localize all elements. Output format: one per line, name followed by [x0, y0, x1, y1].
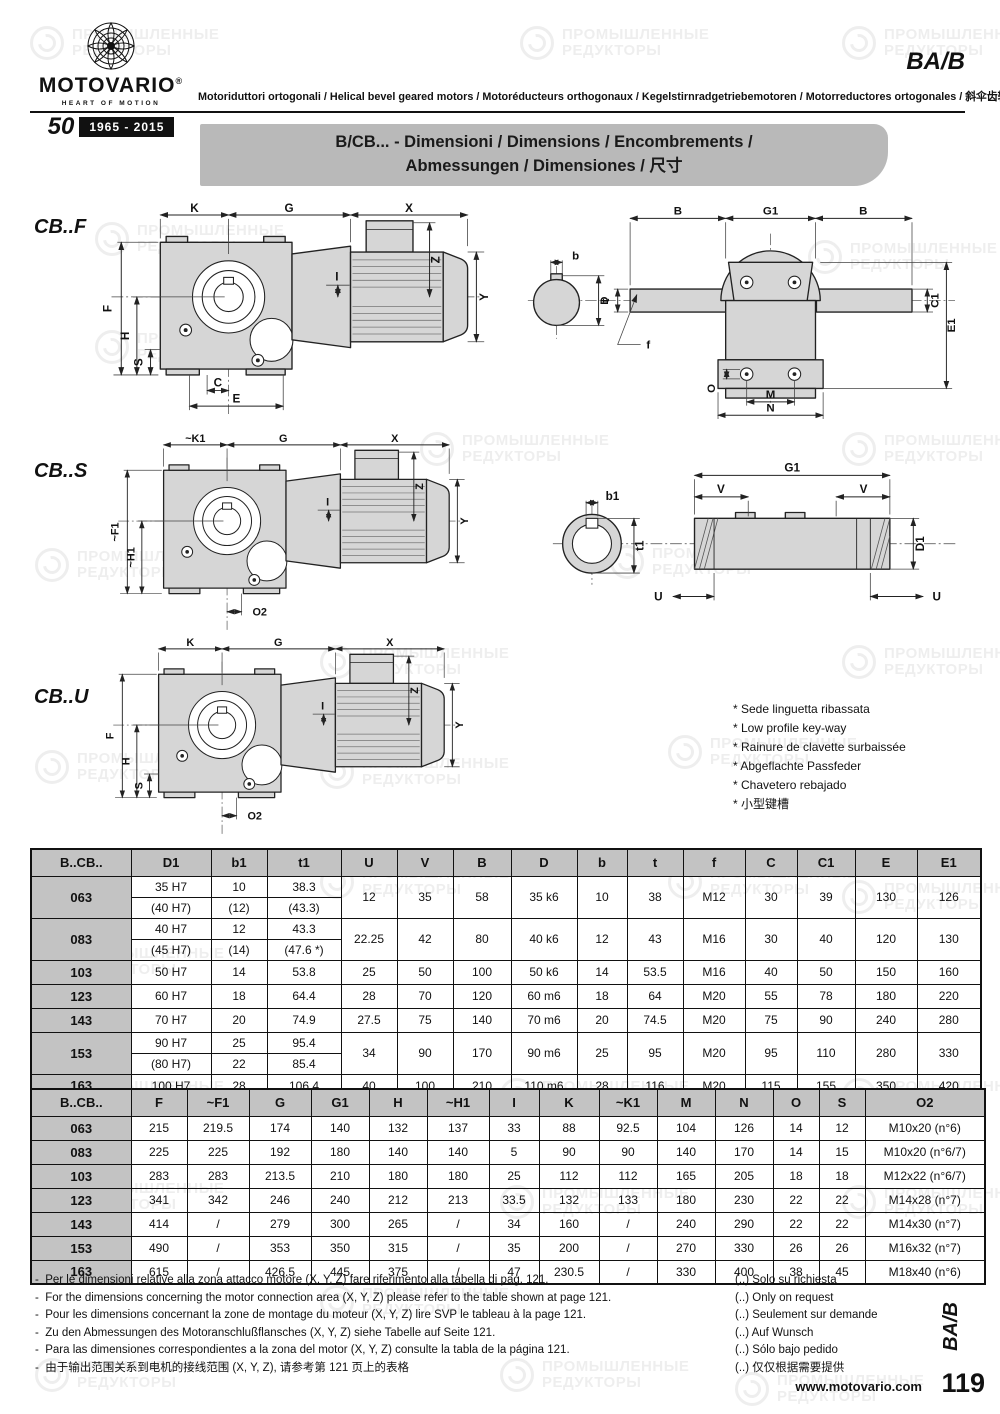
table-cell: 330 [917, 1032, 981, 1074]
dim-label-o: O [706, 384, 718, 393]
watermark-line: ПРОМЫШЛЕННЫЕ [884, 27, 1000, 44]
table-cell: 205 [715, 1164, 773, 1188]
dim-label-y: Y [454, 721, 466, 729]
anniversary-badge: 50 1965 - 2015 [26, 113, 196, 141]
dim-label-m: M [766, 389, 776, 401]
dim-label-z: Z [409, 687, 421, 694]
dim-label-t1: t1 [634, 540, 647, 551]
column-header: G1 [311, 1089, 369, 1116]
keyway-note-line: * Low profile key-way [733, 719, 906, 738]
dim-label-b1: b1 [606, 490, 620, 503]
dim-label-d-rot: D [599, 296, 611, 304]
column-header: B..CB.. [31, 849, 131, 876]
table-cell: 120 [855, 918, 917, 960]
dim-label-c1: C1 [930, 293, 942, 308]
table-row: 14370 H72074.927.57514070 m62074.5M20759… [31, 1008, 981, 1032]
column-header: D [511, 849, 577, 876]
dim-label-v-right: V [860, 483, 868, 496]
column-header: E1 [917, 849, 981, 876]
table-cell: 18 [577, 984, 627, 1008]
table-cell: / [599, 1236, 657, 1260]
table1-header-row: B..CB..D1b1t1UVBDbtfCC1EE1 [31, 849, 981, 876]
table-cell: 92.5 [599, 1116, 657, 1140]
anniversary-number: 50 [48, 113, 75, 141]
footnote-line: - Per le dimensioni relative alla zona a… [35, 1272, 611, 1290]
website-url: www.motovario.com [795, 1379, 922, 1394]
table-cell: 90 H7 [131, 1032, 211, 1053]
gearbox-front [630, 251, 912, 398]
watermark-line: ПРОМЫШЛЕННЫЕ [462, 433, 609, 450]
dim-label-g: G [285, 203, 294, 215]
table-cell: 35 k6 [511, 876, 577, 918]
table-cell: 22 [773, 1188, 819, 1212]
table-cell: M14x28 (n°7) [865, 1188, 985, 1212]
table-cell: 53.5 [627, 960, 683, 984]
table-cell: / [187, 1212, 249, 1236]
cbu-side-view-drawing: K G X F H S O2 Z Y I [95, 638, 467, 842]
table-row: 153490/353350315/35200/2703302626M16x32 … [31, 1236, 985, 1260]
keyway-note-line: * Abgeflachte Passfeder [733, 757, 906, 776]
table-cell: / [427, 1236, 489, 1260]
table-cell: 200 [539, 1236, 599, 1260]
model-cell: 143 [31, 1212, 131, 1236]
footnote-line: (..) Solo su richiesta [735, 1272, 878, 1290]
swirl-icon [35, 548, 69, 582]
table-cell: 300 [311, 1212, 369, 1236]
table-cell: 18 [773, 1164, 819, 1188]
banner-line-2: Abmessungen / Dimensiones / 尺寸 [406, 155, 683, 179]
column-header: M [657, 1089, 715, 1116]
table-cell: 40 [797, 918, 855, 960]
table-cell: 90 [397, 1032, 453, 1074]
dim-label-f-small: f [646, 339, 650, 351]
swirl-icon [35, 750, 69, 784]
table-cell: 280 [917, 1008, 981, 1032]
watermark-line: РЕДУКТОРЫ [562, 43, 709, 60]
table-cell: 95 [745, 1032, 797, 1074]
section-title-cbs: CB..S [34, 460, 87, 483]
table2-header-row: B..CB..F~F1GG1H~H1IK~K1MNOSO2 [31, 1089, 985, 1116]
dim-label-g1: G1 [784, 461, 800, 474]
dim-label-i: I [326, 497, 329, 509]
swirl-icon [735, 1372, 769, 1406]
dim-label-z: Z [429, 256, 442, 263]
model-cell: 143 [31, 1008, 131, 1032]
table-cell: 38 [627, 876, 683, 918]
table-cell: 80 [453, 918, 511, 960]
gearbox-housing [160, 236, 293, 375]
table-cell: 180 [855, 984, 917, 1008]
dim-label-h1: ~H1 [126, 547, 138, 567]
table-cell: 270 [657, 1236, 715, 1260]
table-cell: / [427, 1212, 489, 1236]
table-cell: 230 [715, 1188, 773, 1212]
model-cell: 123 [31, 1188, 131, 1212]
column-header: N [715, 1089, 773, 1116]
table-row: 10350 H71453.8255010050 k61453.5M1640501… [31, 960, 981, 984]
hollow-shaft-section [563, 514, 622, 573]
watermark: ПРОМЫШЛЕННЫЕРЕДУКТОРЫ [842, 645, 1000, 679]
table-cell: 74.5 [627, 1008, 683, 1032]
dim-label-h: H [119, 332, 132, 340]
column-header: C1 [797, 849, 855, 876]
table-cell: 212 [369, 1188, 427, 1212]
table-cell: 280 [855, 1032, 917, 1074]
keyway-note-line: * Sede linguetta ribassata [733, 700, 906, 719]
table-cell: 27.5 [341, 1008, 397, 1032]
table-cell: 75 [397, 1008, 453, 1032]
dim-label-y: Y [459, 517, 471, 525]
swirl-icon [520, 26, 554, 60]
table-cell: 174 [249, 1116, 311, 1140]
model-cell: 063 [31, 876, 131, 918]
table-cell: 85.4 [267, 1053, 341, 1074]
table-row: 08340 H71243.322.25428040 k61243M1630401… [31, 918, 981, 939]
dim-label-g: G [279, 434, 287, 445]
table-cell: M12x22 (n°6/7) [865, 1164, 985, 1188]
table-cell: 180 [427, 1164, 489, 1188]
table-cell: 213 [427, 1188, 489, 1212]
dim-label-c: C [214, 377, 223, 390]
motor [281, 654, 444, 772]
column-header: ~F1 [187, 1089, 249, 1116]
table-cell: 14 [577, 960, 627, 984]
model-cell: 103 [31, 1164, 131, 1188]
table-cell: 283 [187, 1164, 249, 1188]
table-cell: 132 [369, 1116, 427, 1140]
watermark-line: РЕДУКТОРЫ [542, 1375, 689, 1392]
table-cell: 170 [715, 1140, 773, 1164]
table-cell: 246 [249, 1188, 311, 1212]
table-cell: 12 [819, 1116, 865, 1140]
table-cell: 25 [211, 1032, 267, 1053]
column-header: B..CB.. [31, 1089, 131, 1116]
table-cell: 12 [577, 918, 627, 960]
brand-name: MOTOVARIO® [26, 74, 196, 98]
dim-label-x: X [405, 203, 413, 215]
table-cell: 350 [311, 1236, 369, 1260]
table-cell: (45 H7) [131, 939, 211, 960]
table-cell: 414 [131, 1212, 187, 1236]
table-cell: 30 [745, 918, 797, 960]
table-cell: 100 [453, 960, 511, 984]
table-cell: 126 [917, 876, 981, 918]
dim-label-d1: D1 [914, 536, 927, 551]
table-cell: 40 H7 [131, 918, 211, 939]
dim-label-f: F [104, 732, 116, 739]
table-cell: 50 [797, 960, 855, 984]
footnote-line: (..) Only on request [735, 1290, 878, 1308]
table-cell: (43.3) [267, 897, 341, 918]
column-header: C [745, 849, 797, 876]
brand-tagline: HEART OF MOTION [26, 100, 196, 107]
table-cell: 40 [745, 960, 797, 984]
table-cell: 38.3 [267, 876, 341, 897]
table-cell: 112 [599, 1164, 657, 1188]
table-cell: M16 [683, 918, 745, 960]
dim-label-x: X [386, 638, 394, 649]
table-cell: 165 [657, 1164, 715, 1188]
table-cell: 132 [539, 1188, 599, 1212]
dim-label-f1: ~F1 [109, 522, 121, 541]
table-cell: M10x20 (n°6) [865, 1116, 985, 1140]
table-cell: 240 [855, 1008, 917, 1032]
column-header: H [369, 1089, 427, 1116]
table-cell: 22 [819, 1188, 865, 1212]
table-cell: 18 [819, 1164, 865, 1188]
table-cell: 22.25 [341, 918, 397, 960]
table-cell: M16x32 (n°7) [865, 1236, 985, 1260]
banner-line-1: B/CB... - Dimensioni / Dimensions / Enco… [335, 131, 752, 155]
table-cell: 283 [131, 1164, 187, 1188]
column-header: t [627, 849, 683, 876]
dim-label-b-right: B [859, 206, 867, 218]
table-cell: 130 [917, 918, 981, 960]
footnote-line: (..) Auf Wunsch [735, 1325, 878, 1343]
table-cell: (12) [211, 897, 267, 918]
table-cell: 64 [627, 984, 683, 1008]
table-cell: 90 [797, 1008, 855, 1032]
footnote-line: - For the dimensions concerning the moto… [35, 1290, 611, 1308]
table-cell: M20 [683, 1008, 745, 1032]
catalog-page: ПРОМЫШЛЕННЫЕРЕДУКТОРЫПРОМЫШЛЕННЫЕРЕДУКТО… [0, 0, 1000, 1414]
table-cell: 22 [211, 1053, 267, 1074]
dim-label-g: G [274, 638, 282, 649]
table-cell: 22 [819, 1212, 865, 1236]
table-cell: 26 [819, 1236, 865, 1260]
table-cell: 140 [369, 1140, 427, 1164]
table-cell: 26 [773, 1236, 819, 1260]
table-cell: 490 [131, 1236, 187, 1260]
column-header: B [453, 849, 511, 876]
table-cell: 140 [453, 1008, 511, 1032]
column-header: V [397, 849, 453, 876]
footnote-line: - Para las dimensiones correspondientes … [35, 1342, 611, 1360]
table-cell: M14x30 (n°7) [865, 1212, 985, 1236]
model-cell: 083 [31, 918, 131, 960]
table-cell: 279 [249, 1212, 311, 1236]
table-cell: 14 [773, 1140, 819, 1164]
anniversary-years: 1965 - 2015 [79, 117, 174, 137]
footnote-line: (..) Sólo bajo pedido [735, 1342, 878, 1360]
motor [292, 221, 468, 348]
dim-label-z: Z [414, 483, 426, 490]
table-cell: 50 k6 [511, 960, 577, 984]
table-cell: 240 [657, 1212, 715, 1236]
watermark-line: РЕДУКТОРЫ [77, 1375, 224, 1392]
table-cell: 95 [627, 1032, 683, 1074]
table-cell: 265 [369, 1212, 427, 1236]
table-cell: M12 [683, 876, 745, 918]
table-cell: 22 [773, 1212, 819, 1236]
footnote-line: - Zu den Abmessungen des Motoranschlußfl… [35, 1325, 611, 1343]
dim-label-s: S [133, 782, 145, 789]
column-header: G [249, 1089, 311, 1116]
table-cell: 130 [855, 876, 917, 918]
watermark-line: ПРОМЫШЛЕННЫЕ [884, 646, 1000, 663]
table-cell: 43.3 [267, 918, 341, 939]
footnotes-right: (..) Solo su richiesta(..) Only on reque… [735, 1272, 878, 1377]
section-title-cbu: CB..U [34, 686, 88, 709]
table-cell: 5 [489, 1140, 539, 1164]
dim-label-i: I [321, 701, 324, 713]
swirl-icon [842, 26, 876, 60]
dim-label-x: X [391, 434, 399, 445]
table-cell: 20 [577, 1008, 627, 1032]
column-header: O [773, 1089, 819, 1116]
table-cell: M18x40 (n°6) [865, 1260, 985, 1284]
table-cell: 225 [131, 1140, 187, 1164]
table-cell: 55 [745, 984, 797, 1008]
table-row: 12334134224624021221333.5132133180230222… [31, 1188, 985, 1212]
table-cell: 70 H7 [131, 1008, 211, 1032]
table-cell: 341 [131, 1188, 187, 1212]
shaft-cross-section [534, 274, 580, 326]
table-cell: 70 m6 [511, 1008, 577, 1032]
dim-label-k: K [190, 203, 199, 215]
table-cell: M20 [683, 984, 745, 1008]
table-cell: 35 H7 [131, 876, 211, 897]
table-cell: 315 [369, 1236, 427, 1260]
keyway-notes: * Sede linguetta ribassata* Low profile … [733, 700, 906, 814]
table-cell: 220 [917, 984, 981, 1008]
dim-label-k: K [186, 638, 194, 649]
table-cell: 240 [311, 1188, 369, 1212]
table-row: 083225225192180140140590901401701415M10x… [31, 1140, 985, 1164]
dim-label-k1: ~K1 [185, 434, 205, 445]
table-cell: 90 [539, 1140, 599, 1164]
table-cell: 192 [249, 1140, 311, 1164]
document-code: BA/B [906, 48, 965, 76]
table-cell: 50 H7 [131, 960, 211, 984]
table-cell: 28 [341, 984, 397, 1008]
gearbox-housing [159, 669, 282, 798]
table-cell: M16 [683, 960, 745, 984]
column-header: F [131, 1089, 187, 1116]
table-cell: 33.5 [489, 1188, 539, 1212]
table-cell: 10 [577, 876, 627, 918]
hollow-shaft-cylinder [695, 513, 890, 570]
table-cell: 342 [187, 1188, 249, 1212]
table-row: 12360 H71864.4287012060 m61864M205578180… [31, 984, 981, 1008]
table-cell: 60 H7 [131, 984, 211, 1008]
gearbox-housing [164, 465, 287, 594]
model-cell: 153 [31, 1236, 131, 1260]
table-cell: 180 [311, 1140, 369, 1164]
table-cell: (14) [211, 939, 267, 960]
footnote-line: - Pour les dimensions concernant la zone… [35, 1307, 611, 1325]
table-cell: 25 [341, 960, 397, 984]
dim-label-h: H [121, 757, 133, 765]
column-header: E [855, 849, 917, 876]
table-cell: 290 [715, 1212, 773, 1236]
table-cell: 74.9 [267, 1008, 341, 1032]
table-cell: 137 [427, 1116, 489, 1140]
table-cell: 18 [211, 984, 267, 1008]
brand-logo: MOTOVARIO® HEART OF MOTION 50 1965 - 201… [26, 20, 196, 141]
model-cell: 123 [31, 984, 131, 1008]
cbf-side-view-drawing: K G X F H S C E Z Y I [92, 203, 492, 423]
column-header: b [577, 849, 627, 876]
table-row: 06335 H71038.312355835 k61038M1230391301… [31, 876, 981, 897]
table-row: 15390 H72595.4349017090 m62595M209511028… [31, 1032, 981, 1053]
table-cell: 50 [397, 960, 453, 984]
table-cell: 140 [427, 1140, 489, 1164]
table-cell: 35 [397, 876, 453, 918]
dim-label-s: S [133, 358, 146, 366]
table-cell: (47.6 *) [267, 939, 341, 960]
dim-label-e1: E1 [946, 318, 958, 333]
section-title-cbf: CB..F [34, 216, 86, 239]
dimensions-table-1: B..CB..D1b1t1UVBDbtfCC1EE1 06335 H71038.… [30, 848, 982, 1099]
watermark: ПРОМЫШЛЕННЫЕРЕДУКТОРЫ [520, 26, 709, 60]
table-cell: 140 [657, 1140, 715, 1164]
table-cell: M10x20 (n°6/7) [865, 1140, 985, 1164]
table-cell: 215 [131, 1116, 187, 1140]
table-cell: 170 [453, 1032, 511, 1074]
model-cell: 063 [31, 1116, 131, 1140]
column-header: b1 [211, 849, 267, 876]
table-cell: 95.4 [267, 1032, 341, 1053]
table-cell: 104 [657, 1116, 715, 1140]
footnote-line: - 由于输出范围关系到电机的接线范围 (X, Y, Z), 请参考第 121 页… [35, 1360, 611, 1378]
table-cell: 150 [855, 960, 917, 984]
column-header: I [489, 1089, 539, 1116]
table-cell: (40 H7) [131, 897, 211, 918]
watermark-text: ПРОМЫШЛЕННЫЕРЕДУКТОРЫ [884, 646, 1000, 679]
title-banner: B/CB... - Dimensioni / Dimensions / Enco… [200, 124, 888, 186]
table-cell: (80 H7) [131, 1053, 211, 1074]
table-cell: 90 [599, 1140, 657, 1164]
table-cell: 30 [745, 876, 797, 918]
table-cell: 110 [797, 1032, 855, 1074]
table-cell: 35 [489, 1236, 539, 1260]
column-header: D1 [131, 849, 211, 876]
keyway-note-line: * Rainure de clavette surbaissée [733, 738, 906, 757]
header-rule [30, 111, 965, 113]
column-header: K [539, 1089, 599, 1116]
table-cell: 20 [211, 1008, 267, 1032]
dim-label-o2: O2 [252, 606, 267, 618]
keyway-note-line: * 小型键槽 [733, 795, 906, 814]
table-cell: 90 m6 [511, 1032, 577, 1074]
page-number: 119 [941, 1368, 985, 1399]
table-cell: 180 [369, 1164, 427, 1188]
table-cell: 126 [715, 1116, 773, 1140]
model-cell: 103 [31, 960, 131, 984]
column-header: ~K1 [599, 1089, 657, 1116]
table-cell: 75 [745, 1008, 797, 1032]
dim-label-b-small: b [572, 250, 579, 262]
table-cell: 14 [211, 960, 267, 984]
table-cell: 120 [453, 984, 511, 1008]
dim-label-o2: O2 [247, 810, 262, 822]
table-cell: 88 [539, 1116, 599, 1140]
model-cell: 083 [31, 1140, 131, 1164]
column-header: ~H1 [427, 1089, 489, 1116]
column-header: O2 [865, 1089, 985, 1116]
table-cell: 210 [311, 1164, 369, 1188]
motor [286, 450, 449, 568]
dim-label-v-left: V [717, 483, 725, 496]
table-cell: 39 [797, 876, 855, 918]
table-cell: 160 [539, 1212, 599, 1236]
dim-label-u-left: U [654, 590, 662, 603]
table-cell: 133 [599, 1188, 657, 1212]
swirl-icon [842, 645, 876, 679]
keyway-note-line: * Chavetero rebajado [733, 776, 906, 795]
registered-mark: ® [175, 76, 183, 86]
